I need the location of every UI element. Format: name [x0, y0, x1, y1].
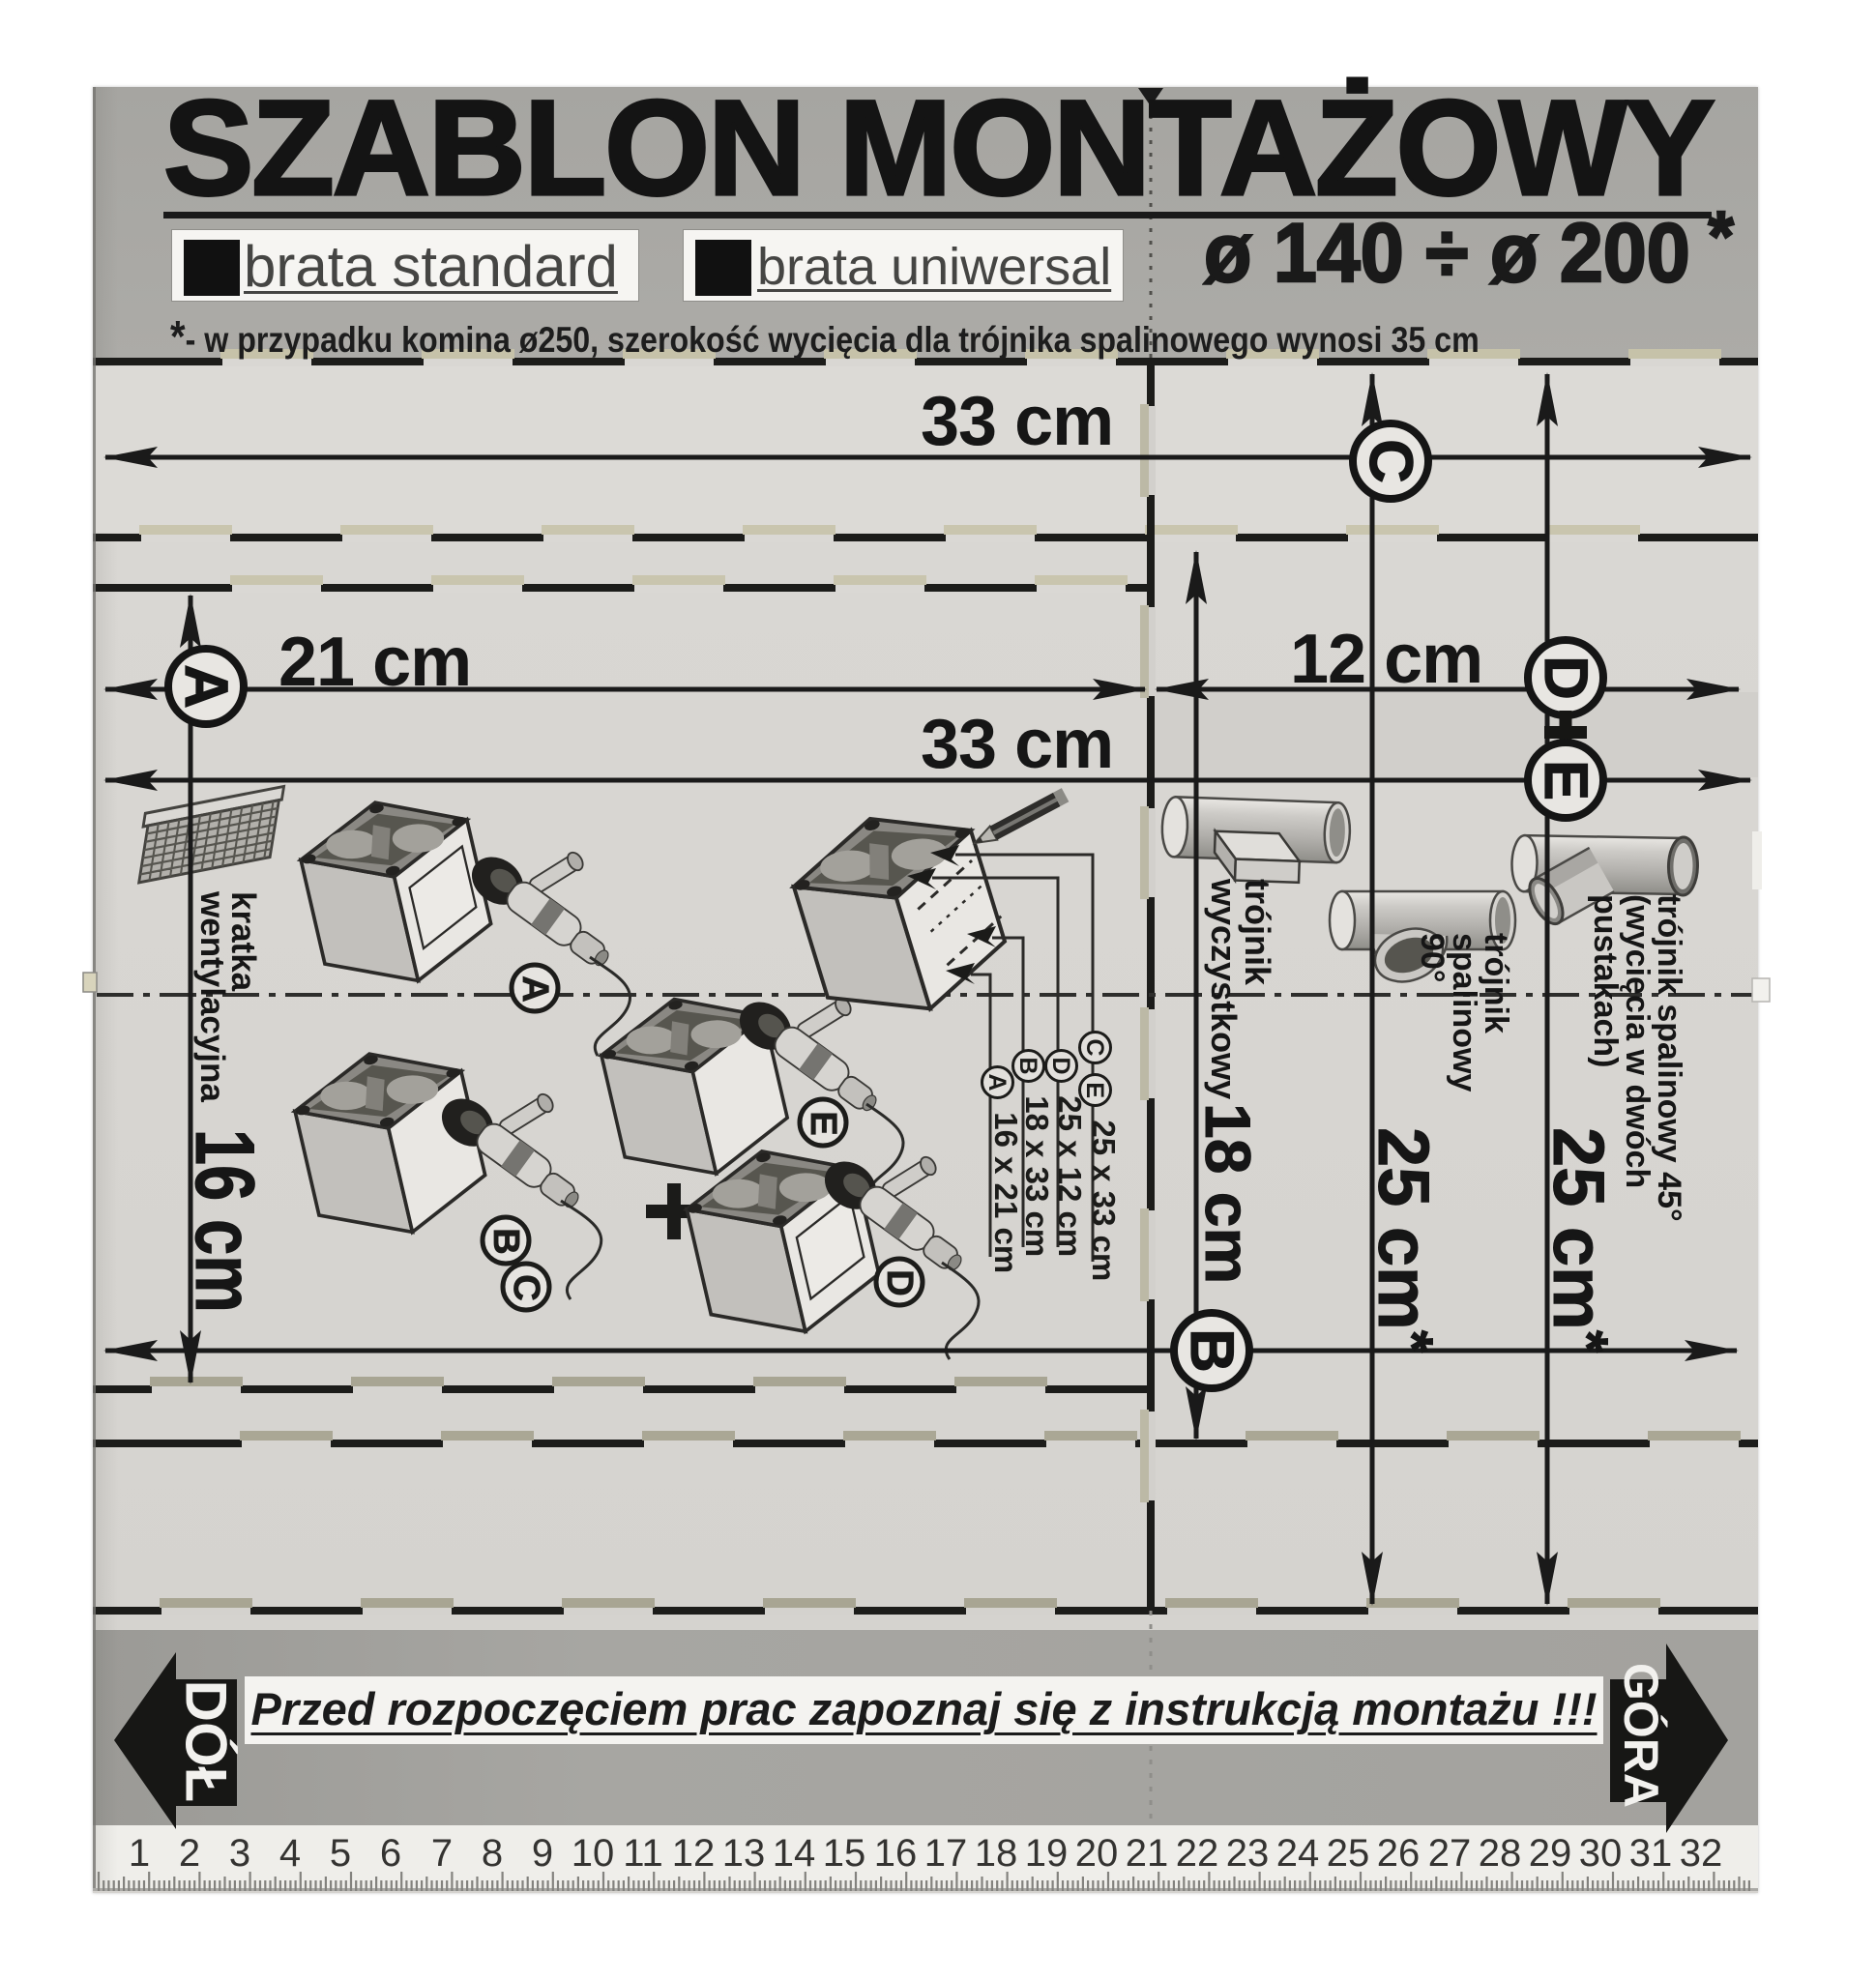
svg-text:A: A	[172, 664, 240, 709]
svg-text:DÓŁ: DÓŁ	[174, 1680, 239, 1803]
svg-text:B: B	[485, 1228, 526, 1254]
svg-text:E: E	[803, 1111, 843, 1135]
svg-text:D: D	[879, 1269, 920, 1295]
svg-text:C: C	[1357, 439, 1424, 483]
svg-text:GÓRA: GÓRA	[1614, 1663, 1668, 1808]
svg-text:B: B	[1178, 1328, 1246, 1373]
svg-text:C: C	[506, 1274, 546, 1300]
svg-text:E: E	[1532, 760, 1599, 800]
svg-text:A: A	[514, 975, 555, 1002]
svg-text:D: D	[1532, 655, 1599, 700]
